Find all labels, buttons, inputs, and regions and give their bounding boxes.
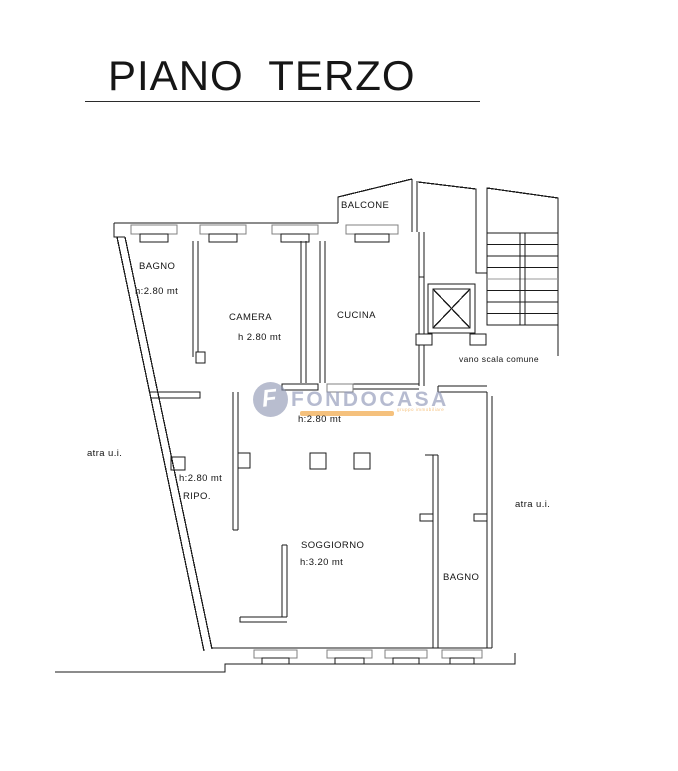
room-label-ripo: RIPO. [183,491,211,502]
room-height-soggiorno: h:3.20 mt [300,557,343,568]
columns [310,453,370,469]
fondocasa-logo-icon: F [253,382,288,417]
room-label-soggiorno: SOGGIORNO [301,540,364,551]
floorplan-page: F FONDOCASA gruppo immobiliare PIANO TER… [0,0,678,771]
room-height-hall: h:2.80 mt [298,414,341,425]
label-atra-ui-left: atra u.i. [87,448,122,459]
room-label-camera: CAMERA [229,312,272,323]
room-height-ripo: h:2.80 mt [179,473,222,484]
room-label-bagno-se: BAGNO [443,572,479,583]
elevator [416,277,486,345]
interior-walls [150,232,487,648]
fondocasa-logo-letter: F [261,384,279,413]
label-vano-scala: vano scala comune [459,354,539,365]
label-atra-ui-right: atra u.i. [515,499,550,510]
room-label-cucina: CUCINA [337,310,376,321]
fondocasa-watermark: F FONDOCASA gruppo immobiliare [247,382,455,422]
room-height-camera: h 2.80 mt [238,332,281,343]
room-label-bagno-nw: BAGNO [139,261,175,272]
room-label-balcone: BALCONE [341,200,389,211]
stairs [487,233,558,325]
fondocasa-tagline: gruppo immobiliare [397,407,444,412]
title-underline [85,101,480,102]
room-height-bagno-nw: h:2.80 mt [135,286,178,297]
page-title: PIANO TERZO [108,52,416,100]
